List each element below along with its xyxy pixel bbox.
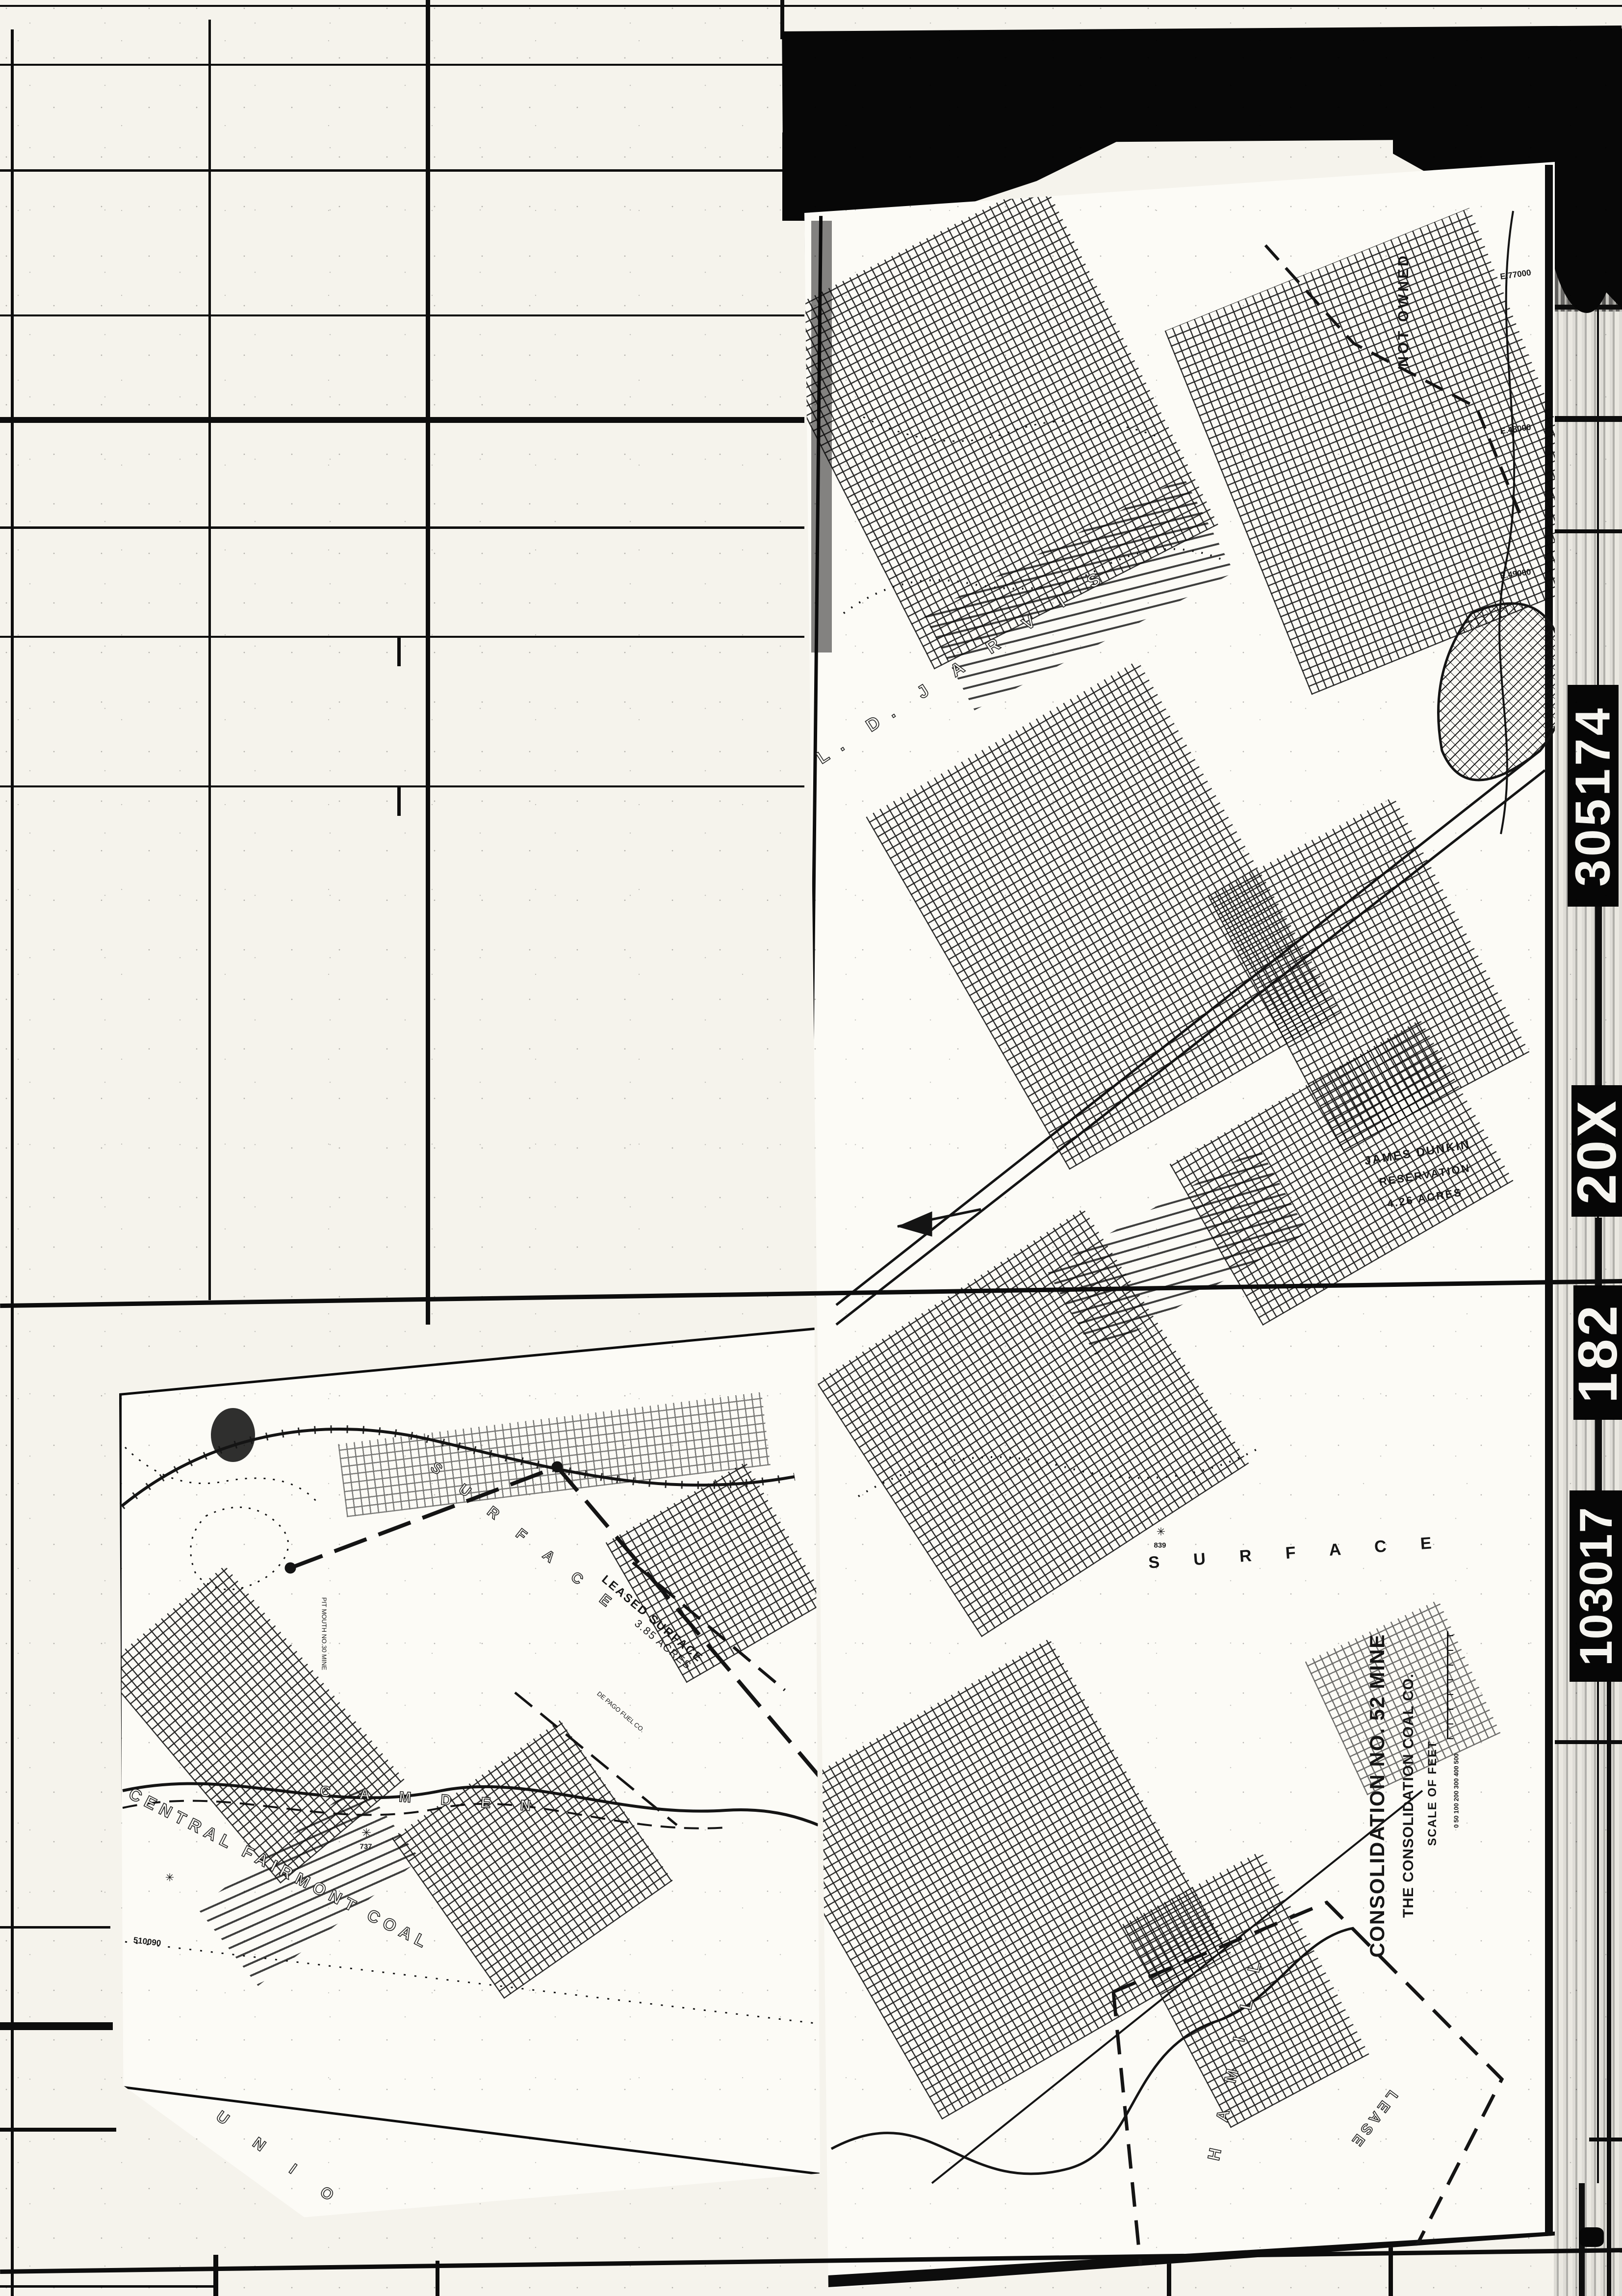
edge-code-103017: 103017 <box>1570 1506 1622 1666</box>
map-sheet-a: NOT OWNED L. D. J A R V I S JAMES DUNKIN… <box>804 162 1555 2289</box>
grid-line <box>0 2022 113 2030</box>
edge-code-box: 103017 <box>1570 1490 1622 1682</box>
map-title: CONSOLIDATION NO. 52 MINE <box>1365 1634 1389 1958</box>
edge-code-182: 182 <box>1566 1303 1622 1403</box>
edge-code-305174: 305174 <box>1565 705 1622 887</box>
grid-line <box>0 2285 217 2288</box>
grid-line <box>0 636 804 638</box>
scale-bar <box>1447 1631 1453 1739</box>
map-company: THE CONSOLIDATION COAL CO. <box>1400 1673 1417 1918</box>
grid-line <box>1554 1740 1622 1744</box>
grid-line-overlay <box>0 2248 1622 2274</box>
grid-line <box>1607 1682 1611 2296</box>
edge-code-box: 182 <box>1573 1285 1622 1420</box>
grid-line <box>397 785 401 816</box>
grid-line <box>1595 907 1602 1085</box>
grid-line <box>0 64 804 66</box>
map-scale-label: SCALE OF FEET <box>1426 1740 1440 1846</box>
label-not-owned: NOT OWNED <box>1395 253 1413 367</box>
map-scale-ticks: 0 50 100 200 300 400 500 <box>1453 1753 1461 1828</box>
sheet-a-linework <box>804 162 1555 2289</box>
grid-line <box>0 314 804 316</box>
grid-line <box>0 785 804 787</box>
grid-line <box>1554 529 1622 533</box>
microfilm-card: C A M D E N CENTRAL FAIRMONT COAL U N I … <box>0 0 1622 2296</box>
edge-mark <box>1579 2227 1604 2247</box>
edge-code-20x: 20X <box>1565 1097 1622 1204</box>
grid-line <box>1595 1218 1602 1285</box>
grid-line <box>213 2255 218 2296</box>
map-sheet-b: C A M D E N CENTRAL FAIRMONT COAL U N I … <box>118 1325 822 2220</box>
grid-line <box>397 636 401 666</box>
grid-line <box>0 2128 116 2132</box>
grid-line <box>208 20 211 1300</box>
grid-line <box>0 1926 110 1929</box>
grid-line <box>1595 1420 1602 1490</box>
grid-line <box>1589 2138 1622 2141</box>
shaft-icon: ✳ <box>165 1871 174 1883</box>
edge-code-box: 305174 <box>1568 685 1619 907</box>
edge-code-box: 20X <box>1571 1085 1622 1217</box>
label-elevation-737: 737 <box>360 1842 372 1851</box>
grid-line <box>0 526 804 529</box>
sheet-b-linework <box>118 1325 822 2220</box>
label-pit-mouth: PIT MOUTH NO.30 MINE <box>320 1597 328 1670</box>
exposure-band <box>782 26 1622 144</box>
grid-line <box>1554 416 1622 422</box>
grid-line <box>0 5 1622 7</box>
label-benchmark-839: 839 <box>1154 1541 1166 1549</box>
grid-line <box>426 0 430 1325</box>
grid-line <box>0 417 804 423</box>
grid-line <box>0 169 804 172</box>
shaft-icon: ✳ <box>1157 1525 1165 1538</box>
grid-line <box>11 29 14 2296</box>
shaft-icon: ✳ <box>361 1826 371 1840</box>
